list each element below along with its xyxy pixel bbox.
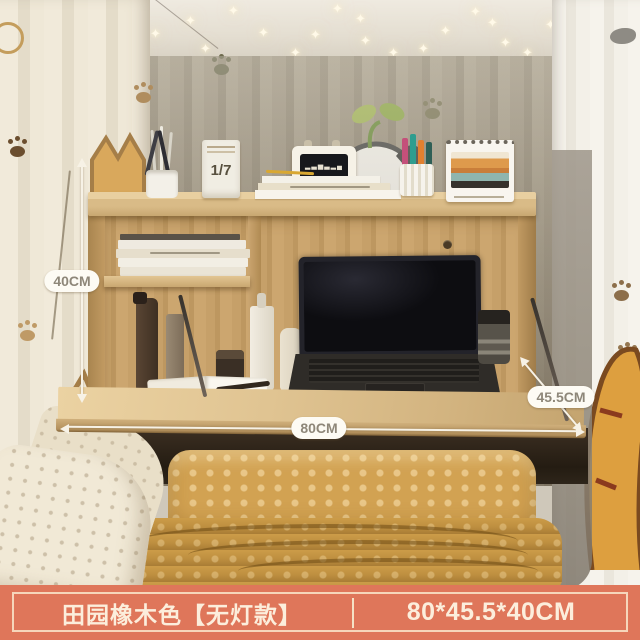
- book-spine: [262, 176, 380, 183]
- calendar-header-text: [207, 146, 235, 148]
- radio-knob: [332, 140, 340, 146]
- paw-print-icon: [214, 64, 229, 75]
- string-light-icon: ✦: [500, 36, 511, 49]
- string-light-icon: ✦: [332, 2, 343, 15]
- variant-name-text: 田园橡木色【无灯款】: [12, 585, 352, 640]
- laptop-keys: [309, 359, 479, 383]
- book-spine: [118, 240, 246, 249]
- calendar-caption-text: [454, 196, 504, 198]
- mini-shelf-board: [104, 276, 250, 287]
- paw-print-icon: [20, 330, 35, 341]
- marker-holder: [400, 164, 434, 196]
- book-title-text: [290, 186, 370, 188]
- book-title-text: [150, 252, 220, 254]
- string-light-icon: ✦: [310, 28, 321, 41]
- string-light-icon: ✦: [228, 4, 239, 17]
- height-dimension-label: 40CM: [44, 270, 99, 292]
- string-light-icon: ✦: [150, 27, 161, 40]
- desk-calendar: [446, 140, 514, 202]
- paw-print-icon: [136, 92, 151, 103]
- string-light-icon: ✦: [470, 5, 481, 18]
- book-spine: [120, 267, 246, 276]
- arrow-down-icon: [77, 394, 87, 403]
- size-text: 80*45.5*40CM: [354, 585, 628, 640]
- string-light-icon: ✦: [355, 12, 366, 25]
- width-dimension-label: 80CM: [291, 417, 346, 439]
- string-light-icon: ✦: [440, 24, 451, 37]
- product-banner: 田园橡木色【无灯款】 80*45.5*40CM: [0, 585, 640, 640]
- marker-teal: [410, 134, 416, 168]
- tumbler-cup: [478, 310, 510, 364]
- cat-patch-icon: [610, 28, 636, 44]
- book-spine: [255, 190, 401, 199]
- cosmetic-spray-bottle: [136, 298, 158, 390]
- paw-print-icon: [10, 146, 25, 157]
- arrow-up-icon: [77, 158, 87, 167]
- string-light-icon: ✦: [258, 26, 269, 39]
- jar-lid: [216, 350, 244, 359]
- calendar-date: 1/7: [202, 162, 240, 179]
- radio-knob: [304, 140, 312, 146]
- string-light-icon: ✦: [200, 42, 211, 55]
- panel-knob: [443, 240, 452, 249]
- folded-blanket: [98, 518, 562, 588]
- laptop-screen: [298, 255, 481, 357]
- string-light-icon: ✦: [487, 16, 498, 29]
- flip-calendar: 1/7: [202, 140, 240, 198]
- circle-doodle-icon: [0, 22, 24, 54]
- arrow-left-icon: [60, 424, 69, 434]
- laptop-display: [304, 260, 477, 352]
- depth-dimension-label: 45.5CM: [527, 386, 594, 408]
- pen-cup: [146, 170, 178, 198]
- calendar-illustration: [451, 152, 509, 188]
- spray-cap: [133, 292, 147, 304]
- pump-nozzle: [257, 293, 266, 308]
- string-light-icon: ✦: [185, 14, 196, 27]
- string-light-icon: ✦: [360, 34, 371, 47]
- paw-print-icon: [425, 108, 440, 119]
- string-light-icon: ✦: [418, 42, 429, 55]
- book-spine: [118, 258, 248, 267]
- curtain-fold-shadow: [552, 150, 592, 590]
- hutch-side-left: [88, 212, 105, 402]
- product-photo-bed-desk: ✦✦✦✦✦✦✦✦✦✦✦✦✦✦✦✦✦✦✦✦✦✦✦✦✦✦✦✦: [0, 0, 640, 640]
- blanket-fold-line: [238, 558, 538, 584]
